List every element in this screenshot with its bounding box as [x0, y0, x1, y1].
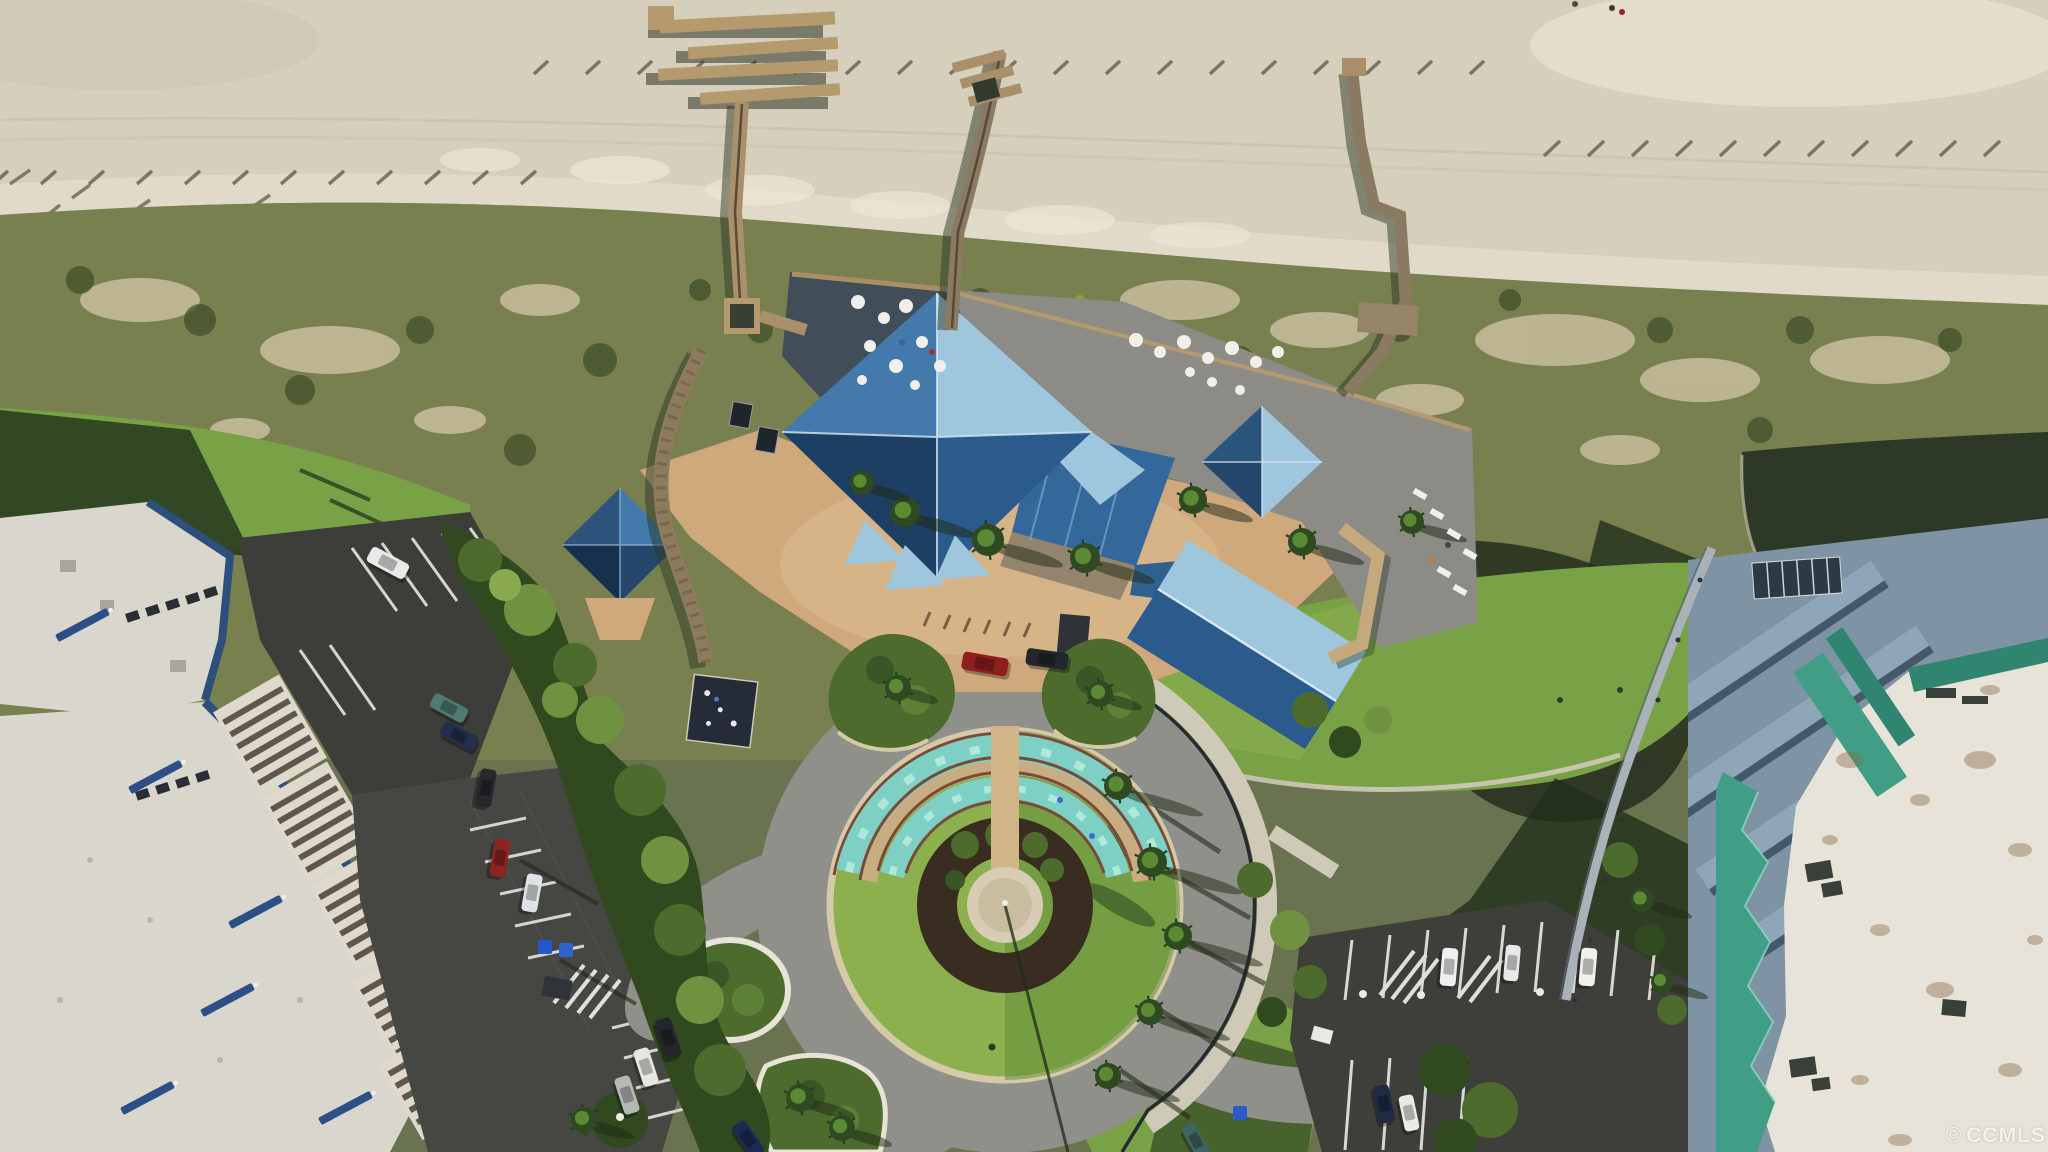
watermark-text: CCMLS — [1966, 1124, 2046, 1147]
overlook-platform — [1357, 302, 1419, 336]
flagpole — [1002, 900, 1008, 906]
car — [1436, 947, 1459, 989]
aerial-photo: ©CCMLS — [0, 0, 2048, 1152]
recycle-bin — [1233, 1106, 1247, 1120]
path-to-parking — [1272, 832, 1335, 872]
mls-watermark: ©CCMLS — [1946, 1124, 2046, 1148]
trail-enclosure — [686, 674, 758, 747]
aerial-scene — [0, 0, 2048, 1152]
beach-person — [1609, 5, 1615, 11]
car — [1575, 947, 1598, 989]
copyright-icon: © — [1946, 1124, 1962, 1147]
car — [1500, 944, 1521, 984]
glass-atrium-roof — [1752, 557, 1842, 599]
hvac-unit — [60, 560, 76, 572]
recycle-bin — [538, 940, 552, 954]
recycle-bin — [559, 943, 573, 957]
beach-person — [1619, 9, 1625, 15]
beach-person — [1572, 1, 1578, 7]
sign-box — [729, 401, 753, 428]
beach-landing — [1342, 58, 1366, 76]
lawn-object — [989, 1044, 996, 1051]
